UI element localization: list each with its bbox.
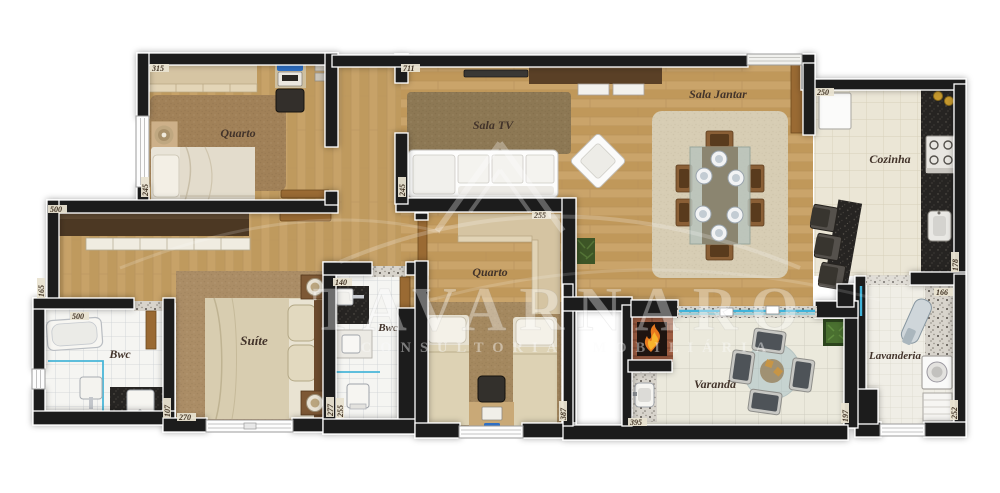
svg-text:255: 255 xyxy=(336,405,345,418)
svg-text:252: 252 xyxy=(950,407,959,420)
svg-text:277: 277 xyxy=(326,403,335,417)
svg-text:166: 166 xyxy=(936,288,948,297)
svg-text:Quarto: Quarto xyxy=(220,126,255,140)
svg-text:387: 387 xyxy=(559,407,568,421)
svg-text:CONSULTORIA IMOBILIÁRIA: CONSULTORIA IMOBILIÁRIA xyxy=(361,339,776,356)
svg-text:Varanda: Varanda xyxy=(694,377,736,391)
svg-text:245: 245 xyxy=(398,184,407,197)
svg-text:Lavanderia: Lavanderia xyxy=(868,350,921,362)
svg-text:250: 250 xyxy=(816,88,829,97)
svg-text:107: 107 xyxy=(163,404,172,417)
svg-text:395: 395 xyxy=(629,418,642,427)
svg-text:245: 245 xyxy=(141,184,150,197)
svg-text:Cozinha: Cozinha xyxy=(869,152,910,166)
svg-text:Bwc: Bwc xyxy=(108,347,131,361)
svg-text:Sala Jantar: Sala Jantar xyxy=(689,87,747,101)
svg-text:165: 165 xyxy=(37,285,46,297)
svg-text:178: 178 xyxy=(951,259,960,271)
svg-text:270: 270 xyxy=(178,413,191,422)
svg-text:315: 315 xyxy=(151,64,164,73)
svg-text:TAVARNARO: TAVARNARO xyxy=(312,276,811,344)
svg-text:500: 500 xyxy=(72,312,84,321)
svg-text:Suíte: Suíte xyxy=(240,333,268,348)
svg-text:197: 197 xyxy=(841,409,850,422)
svg-text:500: 500 xyxy=(50,205,62,214)
svg-text:Sala TV: Sala TV xyxy=(473,118,514,132)
svg-text:711: 711 xyxy=(403,64,415,73)
